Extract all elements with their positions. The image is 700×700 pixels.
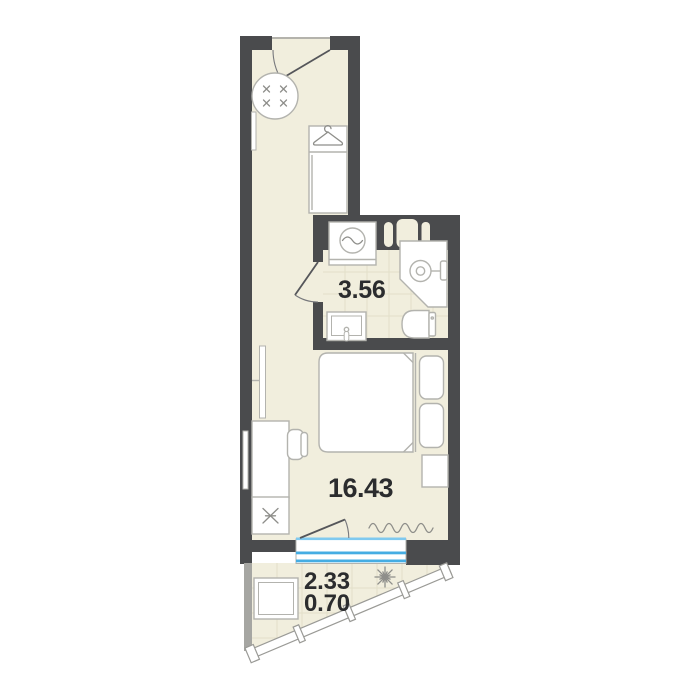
desk [252,421,289,498]
bathroom-sink [327,312,366,341]
pillow [420,404,444,448]
floor-plan-canvas: 3.56 16.43 [0,0,700,700]
toilet [402,311,436,339]
chair [288,430,308,460]
round-table [252,73,298,119]
floor-plan: 3.56 16.43 [0,0,700,700]
pillow [420,356,444,399]
wall-duct [243,431,248,489]
window [296,538,406,564]
bathroom-area-label: 3.56 [338,276,385,304]
wardrobe [309,126,347,213]
hall-radiator [252,112,257,150]
nightstand [422,455,448,487]
kitchen-sink [252,497,289,534]
balcony-table [254,578,298,619]
balcony-side-wall [244,563,252,651]
plant [375,567,395,587]
living-area-label: 16.43 [328,473,394,503]
balcony-area-reduced-label: 0.70 [304,590,350,617]
washing-machine [329,222,376,265]
